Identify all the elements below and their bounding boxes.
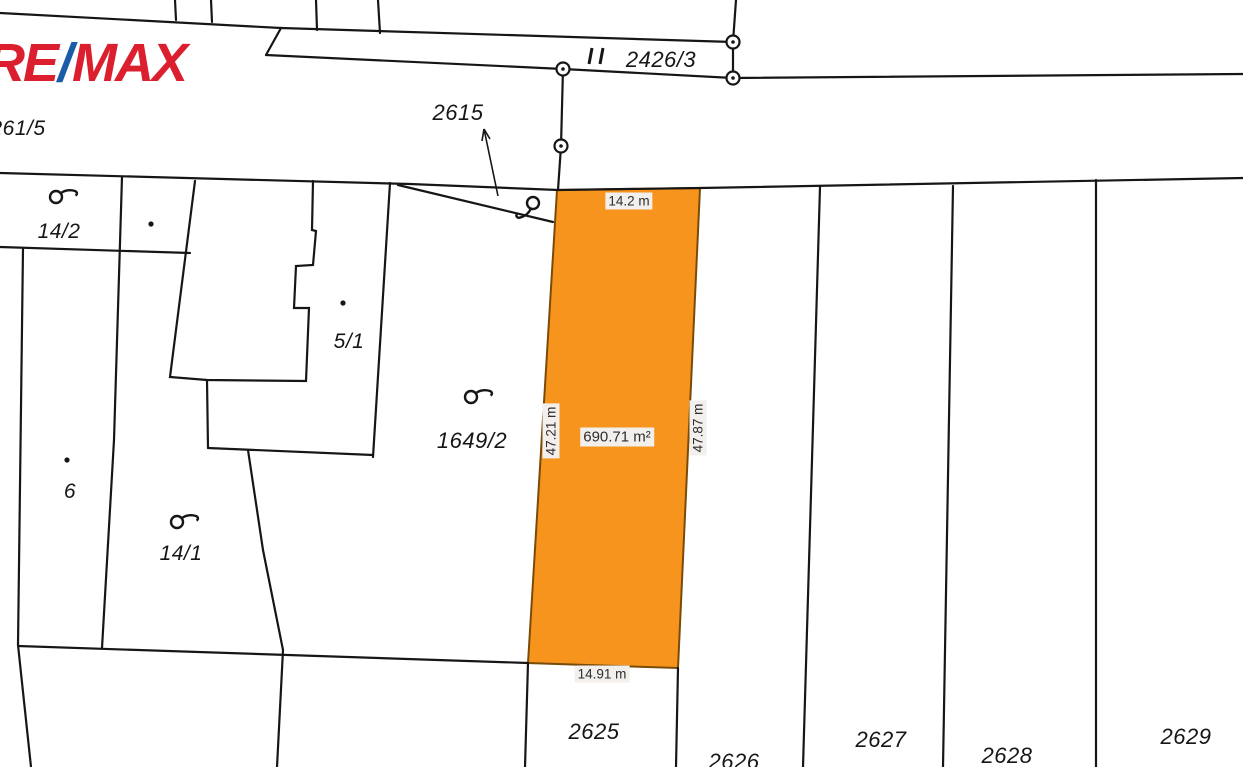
land-use-icons xyxy=(50,190,542,528)
survey-point-icon xyxy=(555,140,568,153)
parcel-label-6: 6 xyxy=(64,480,76,504)
cadastral-map-screenshot: RE/MAX 261/5 2615 2426/3 14/2 5/1 1649/2… xyxy=(0,0,1243,767)
parcel-label-14-2: 14/2 xyxy=(38,220,81,244)
measure-top-width: 14.2 m xyxy=(605,193,652,210)
measure-bottom-width: 14.91 m xyxy=(575,666,630,683)
remax-logo: RE/MAX xyxy=(0,36,186,90)
parcel-label-261-5: 261/5 xyxy=(0,117,46,141)
parcel-label-2426-3: 2426/3 xyxy=(626,47,696,73)
land-use-icon xyxy=(465,390,492,403)
road-bottom-edge xyxy=(266,55,1243,78)
road-marker-double-tick-icon xyxy=(589,48,603,64)
logo-max: MAX xyxy=(72,33,186,93)
land-use-icon xyxy=(512,195,542,220)
main-boundary xyxy=(0,173,1243,190)
land-use-icon xyxy=(171,515,198,528)
measure-left-side: 47.21 m xyxy=(543,404,560,459)
map-canvas[interactable] xyxy=(0,0,1243,767)
parcel-label-2627: 2627 xyxy=(856,727,907,753)
parcel-label-5-1: 5/1 xyxy=(334,330,365,354)
logo-re: RE xyxy=(0,33,57,93)
logo-slash-icon: / xyxy=(57,33,72,93)
road-top-edge xyxy=(281,28,733,42)
measure-area: 690.71 m² xyxy=(580,428,654,447)
survey-point-icon xyxy=(727,72,740,85)
survey-point-icon xyxy=(727,36,740,49)
parcel-label-2629: 2629 xyxy=(1161,724,1212,750)
parcel-label-1649-2: 1649/2 xyxy=(437,428,507,454)
parcel-label-2615: 2615 xyxy=(433,100,484,126)
parcel-label-2628: 2628 xyxy=(982,743,1033,767)
parcel-label-14-1: 14/1 xyxy=(160,542,203,566)
parcel-dots xyxy=(64,221,345,462)
land-use-icon xyxy=(50,190,77,203)
parcel-dot-icon xyxy=(148,221,153,226)
parcel-label-2626: 2626 xyxy=(709,749,760,767)
measure-right-side: 47.87 m xyxy=(690,401,707,456)
parcel-dot-icon xyxy=(340,300,345,305)
parcel-label-2625: 2625 xyxy=(569,719,620,745)
parcel-dot-icon xyxy=(64,457,69,462)
building-outline xyxy=(170,181,316,381)
survey-point-icon xyxy=(557,63,570,76)
